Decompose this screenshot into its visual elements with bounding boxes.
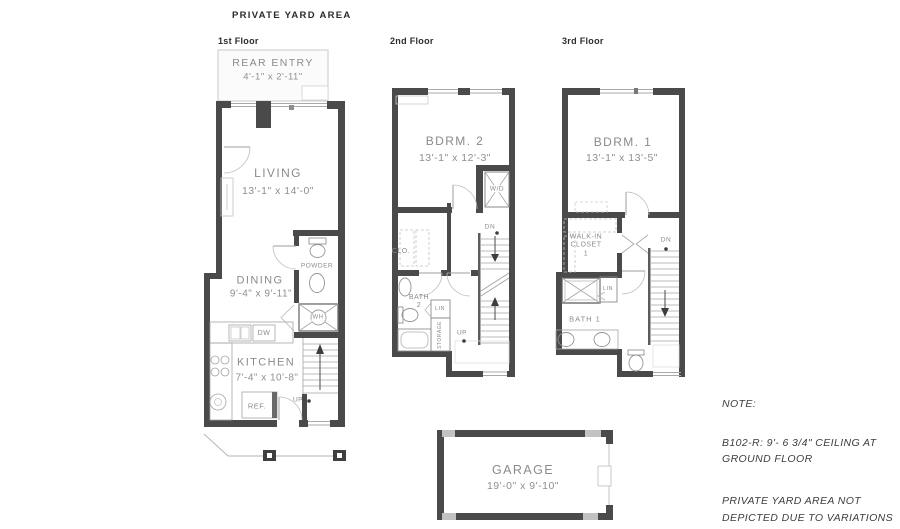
water-heater-closet (281, 304, 338, 331)
water-heater-label: WH (312, 315, 325, 322)
kitchen-label: KITCHEN (237, 357, 295, 370)
living-label: LIVING (254, 167, 302, 181)
floor1-label: 1st Floor (218, 36, 259, 46)
refrigerator-label: REF. (248, 403, 266, 412)
bedroom2-door (453, 185, 477, 209)
floor2-label: 2nd Floor (390, 36, 434, 46)
bdrm1-label: BDRM. 1 (594, 136, 652, 150)
floor2-stairs (455, 231, 509, 363)
bdrm2-label: BDRM. 2 (426, 135, 484, 149)
garage-dims: 19'-0" x 9'-10" (487, 480, 559, 492)
bath2-door (419, 273, 442, 296)
living-door (224, 147, 250, 173)
yard-fence (204, 434, 346, 461)
bdrm2-dims: 13'-1" x 12'-3" (419, 152, 491, 164)
bath1-door (622, 271, 645, 294)
floorplan-page: PRIVATE YARD AREA 1st Floor 2nd Floor 3r… (0, 0, 900, 529)
bath1-toilet (628, 350, 644, 371)
floor3-label: 3rd Floor (562, 36, 604, 46)
rear-entry-dims: 4'-1" x 2'-11" (243, 73, 302, 84)
linen3-label: LIN (603, 286, 613, 292)
dining-dims: 9'-4" x 9'-11" (230, 288, 292, 300)
powder-toilet (309, 238, 326, 258)
note-block: NOTE: B102-R: 9'- 6 3/4" CEILING AT GROU… (722, 379, 893, 529)
floor2-up-label: UP (457, 329, 467, 336)
note-heading: NOTE: (722, 396, 893, 413)
floor1-plan (204, 50, 346, 461)
note-yard-text: PRIVATE YARD AREA NOT DEPICTED DUE TO VA… (722, 493, 893, 529)
powder-label: POWDER (301, 262, 333, 269)
rear-entry-label: REAR ENTRY (232, 57, 314, 69)
bdrm1-dims: 13'-1" x 13'-5" (586, 152, 658, 164)
washer-dryer-label: W/D (489, 185, 505, 192)
garage-label: GARAGE (492, 463, 554, 477)
bath2-label: BATH 2 (409, 294, 429, 310)
floor1-up-label: UP (293, 396, 303, 403)
floor3-stairs (648, 247, 679, 367)
bath2-fixtures (398, 278, 431, 351)
note-ceiling-text: B102-R: 9'- 6 3/4" CEILING AT GROUND FLO… (722, 435, 893, 468)
dishwasher-label: DW (258, 330, 271, 338)
walkin-closet-label: WALK-IN CLOSET 1 (570, 233, 602, 258)
garage-man-door (598, 466, 611, 486)
bath1-label: BATH 1 (569, 316, 601, 325)
floor3-dn-label: DN (661, 236, 671, 243)
bedroom1-door (626, 192, 649, 215)
kitchen-dims: 7'-4" x 10'-8" (236, 372, 299, 384)
dining-label: DINING (237, 275, 284, 288)
bath1-vanity (556, 330, 618, 349)
powder-door (273, 246, 296, 269)
storage-label: STORAGE (438, 321, 444, 349)
powder-sink (310, 274, 325, 293)
page-title: PRIVATE YARD AREA (232, 10, 352, 21)
closet2-label: CLO. (392, 248, 410, 256)
floor2-plan (392, 88, 515, 377)
floor2-dn-label: DN (485, 223, 495, 230)
hall-door (447, 273, 470, 296)
linen2-label: LIN (435, 306, 445, 312)
living-dims: 13'-1" x 14'-0" (242, 185, 314, 197)
closet-bifold-doors (622, 235, 648, 253)
shower (562, 278, 600, 303)
floor1-stairs (302, 338, 338, 420)
